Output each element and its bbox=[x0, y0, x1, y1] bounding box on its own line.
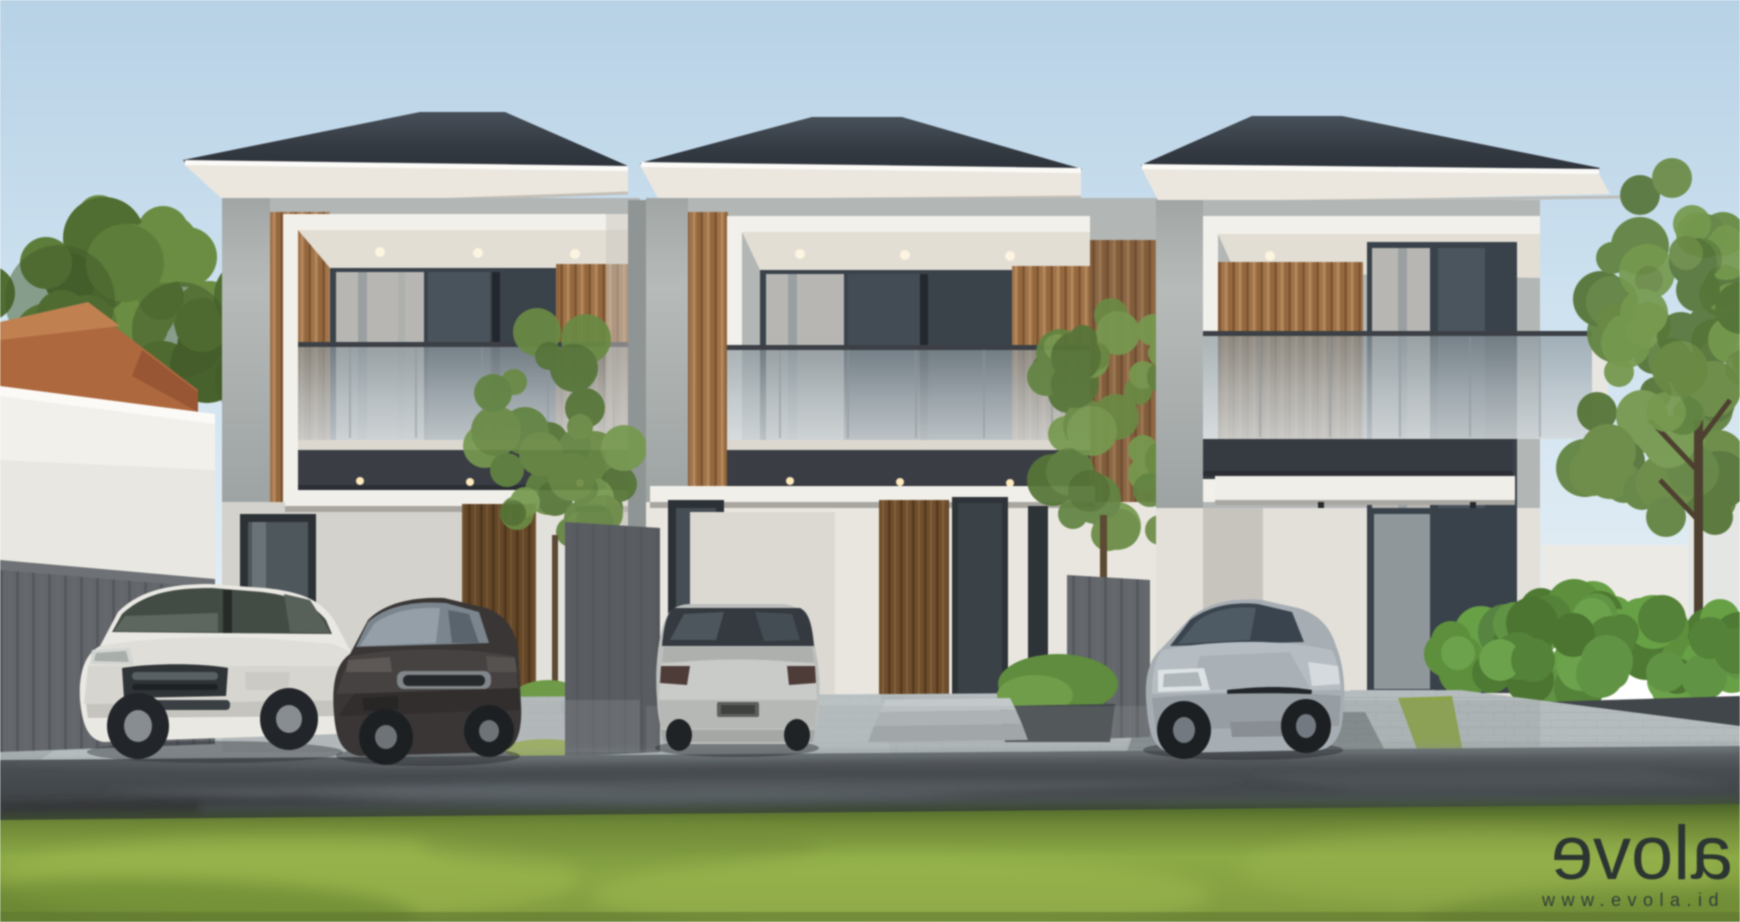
svg-text:www.evola.id: www.evola.id bbox=[1541, 890, 1725, 910]
svg-text:vol: vol bbox=[1593, 811, 1690, 896]
svg-text:e: e bbox=[1551, 811, 1593, 896]
svg-text:a: a bbox=[1690, 811, 1733, 896]
